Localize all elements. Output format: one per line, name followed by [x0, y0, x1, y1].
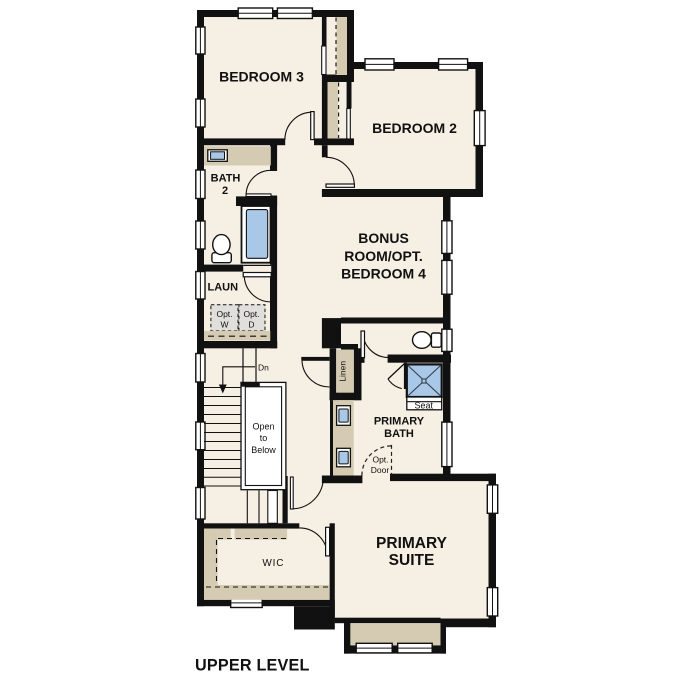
svg-text:BATH: BATH: [384, 428, 414, 440]
svg-text:LAUN: LAUN: [208, 281, 239, 293]
svg-text:UPPER LEVEL: UPPER LEVEL: [195, 656, 310, 674]
svg-text:Opt.: Opt.: [372, 455, 388, 465]
svg-text:Seat: Seat: [415, 400, 434, 410]
svg-text:ROOM/OPT.: ROOM/OPT.: [344, 248, 423, 264]
svg-text:PRIMARY: PRIMARY: [376, 535, 448, 552]
svg-text:Door: Door: [371, 465, 390, 475]
svg-text:BEDROOM 2: BEDROOM 2: [372, 120, 457, 136]
svg-text:WIC: WIC: [262, 558, 284, 569]
svg-text:BEDROOM 4: BEDROOM 4: [341, 266, 426, 282]
svg-text:BONUS: BONUS: [358, 230, 409, 246]
svg-text:Dn: Dn: [258, 363, 269, 373]
svg-text:Opt.: Opt.: [216, 309, 232, 319]
svg-text:Linen: Linen: [338, 361, 348, 382]
svg-text:BATH: BATH: [211, 173, 241, 185]
svg-text:Open: Open: [252, 422, 274, 432]
svg-text:W: W: [220, 320, 228, 330]
svg-text:PRIMARY: PRIMARY: [374, 416, 425, 428]
svg-text:D: D: [248, 320, 254, 330]
svg-text:to: to: [260, 433, 268, 443]
svg-text:SUITE: SUITE: [389, 552, 435, 569]
svg-text:Below: Below: [251, 445, 276, 455]
svg-text:BEDROOM 3: BEDROOM 3: [219, 69, 304, 85]
svg-text:2: 2: [222, 185, 228, 197]
svg-text:Opt.: Opt.: [243, 309, 259, 319]
